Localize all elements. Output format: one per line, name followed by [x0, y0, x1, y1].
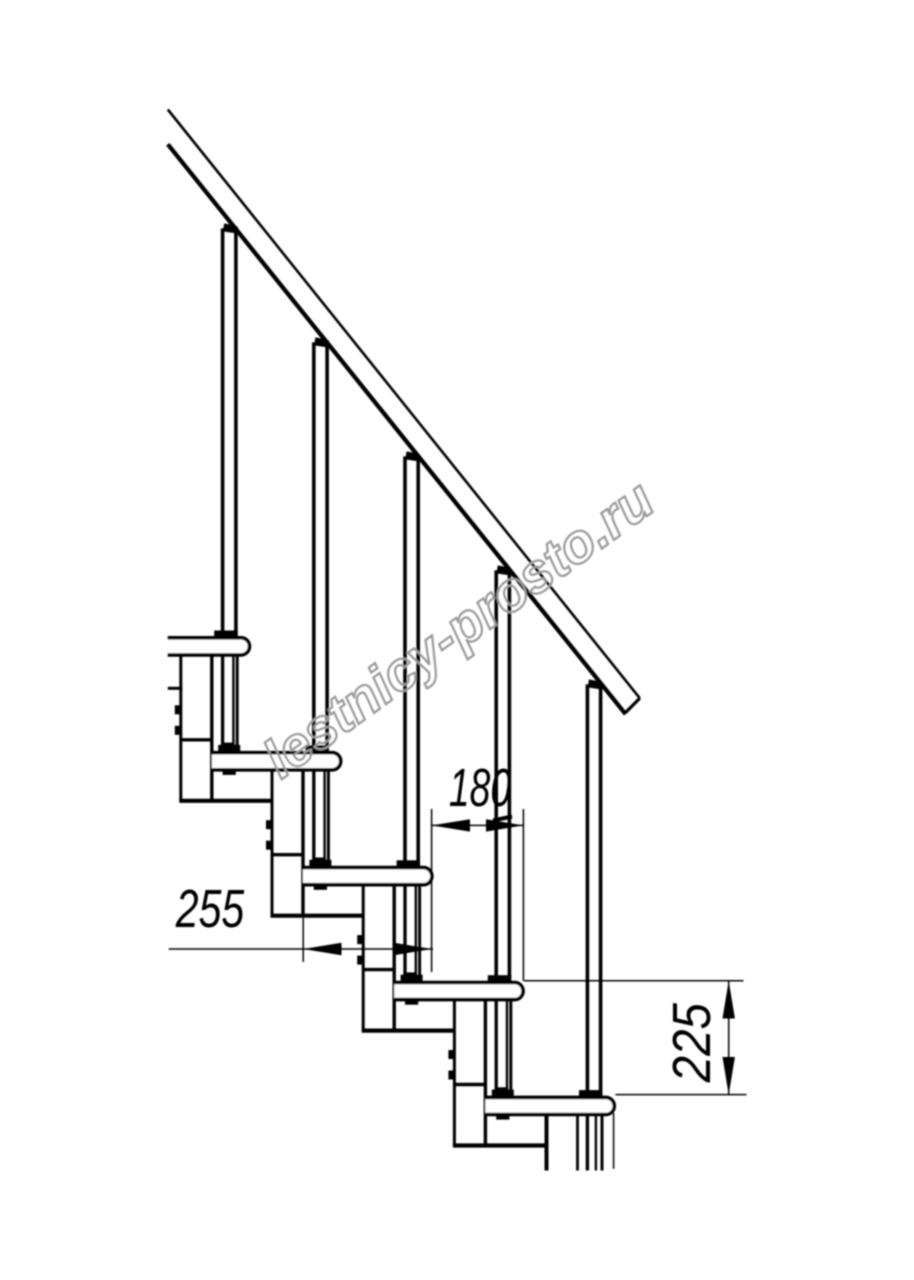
svg-text:180: 180 [449, 757, 511, 818]
svg-text:255: 255 [175, 880, 245, 940]
svg-text:225: 225 [661, 1002, 722, 1083]
